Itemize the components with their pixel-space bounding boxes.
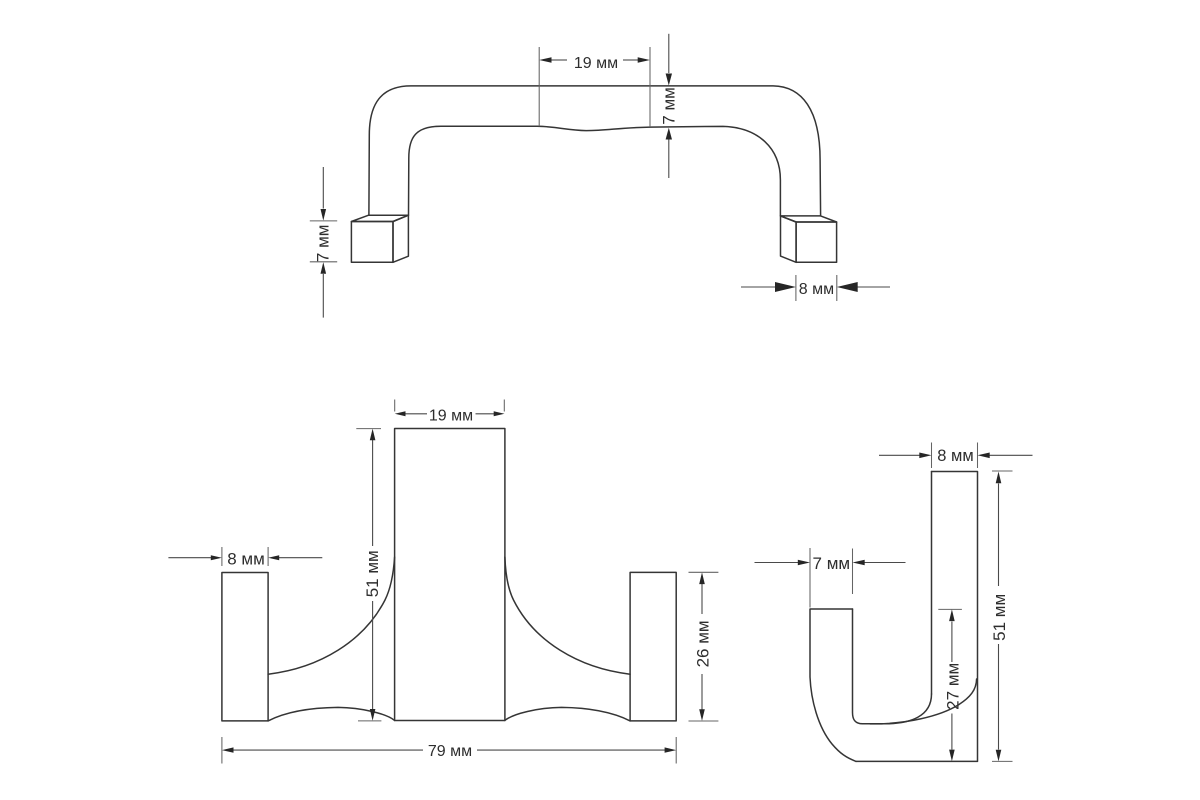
- svg-text:8 мм: 8 мм: [937, 447, 973, 465]
- svg-text:79 мм: 79 мм: [428, 743, 472, 760]
- svg-text:7 мм: 7 мм: [660, 87, 679, 125]
- svg-text:51 мм: 51 мм: [990, 594, 1009, 641]
- svg-text:7 мм: 7 мм: [813, 554, 851, 573]
- svg-text:19 мм: 19 мм: [429, 408, 473, 425]
- svg-text:19 мм: 19 мм: [574, 55, 618, 72]
- svg-text:51 мм: 51 мм: [363, 550, 382, 597]
- svg-text:7 мм: 7 мм: [314, 225, 333, 263]
- svg-text:26 мм: 26 мм: [694, 620, 713, 667]
- svg-text:8 мм: 8 мм: [227, 549, 265, 568]
- svg-text:8 мм: 8 мм: [799, 281, 834, 298]
- svg-text:27 мм: 27 мм: [943, 663, 962, 710]
